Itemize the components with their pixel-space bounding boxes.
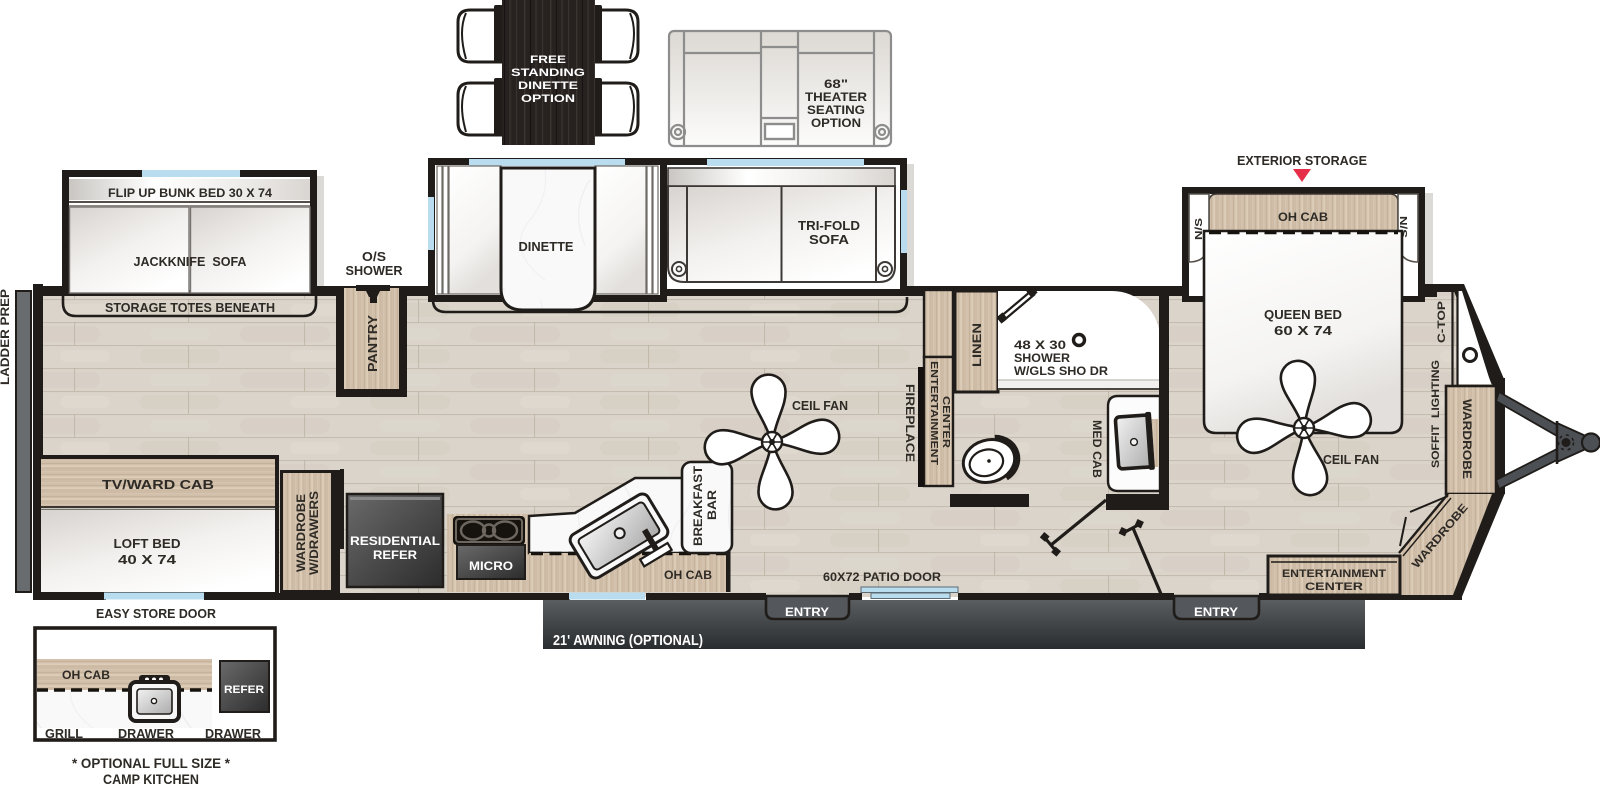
svg-text:21' AWNING (OPTIONAL): 21' AWNING (OPTIONAL)	[553, 633, 703, 649]
svg-text:48 X 30: 48 X 30	[1014, 338, 1066, 352]
svg-text:MED CAB: MED CAB	[1090, 420, 1102, 478]
svg-text:STORAGE TOTES BENEATH: STORAGE TOTES BENEATH	[105, 301, 275, 315]
svg-text:W/DRAWERS: W/DRAWERS	[309, 491, 321, 575]
svg-text:EASY STORE DOOR: EASY STORE DOOR	[96, 606, 217, 621]
svg-text:40 X 74: 40 X 74	[118, 553, 176, 567]
svg-text:CAMP KITCHEN: CAMP KITCHEN	[103, 772, 199, 785]
svg-text:60 X 74: 60 X 74	[1274, 324, 1332, 338]
svg-text:ENTERTAINMENT: ENTERTAINMENT	[1282, 568, 1386, 580]
svg-text:C-TOP: C-TOP	[1436, 301, 1448, 343]
svg-text:FLIP UP BUNK BED 30 X 74: FLIP UP BUNK BED 30 X 74	[108, 186, 272, 200]
svg-text:PANTRY: PANTRY	[366, 314, 380, 372]
svg-text:CEIL FAN: CEIL FAN	[1323, 453, 1379, 467]
svg-text:TV/WARD CAB: TV/WARD CAB	[102, 478, 214, 492]
svg-text:ENTRY: ENTRY	[1194, 605, 1238, 619]
svg-text:WARDROBE: WARDROBE	[1460, 399, 1472, 479]
svg-text:SEATING: SEATING	[807, 105, 865, 117]
svg-text:SHOWER: SHOWER	[346, 264, 403, 278]
svg-text:OPTION: OPTION	[521, 93, 575, 105]
svg-text:SOFFIT LIGHTING: SOFFIT LIGHTING	[1430, 360, 1442, 468]
svg-text:STANDING: STANDING	[511, 67, 585, 79]
svg-text:JACKKNIFE SOFA: JACKKNIFE SOFA	[134, 255, 247, 269]
svg-text:DRAWER: DRAWER	[205, 727, 261, 741]
svg-text:CEIL FAN: CEIL FAN	[792, 399, 848, 413]
svg-text:MICRO: MICRO	[469, 559, 513, 573]
svg-text:O/S: O/S	[362, 250, 386, 264]
svg-text:BREAKFAST: BREAKFAST	[693, 466, 705, 546]
svg-text:ENTERTAINMENT: ENTERTAINMENT	[928, 361, 939, 465]
svg-text:LINEN: LINEN	[972, 323, 984, 367]
svg-text:OPTION: OPTION	[811, 118, 861, 130]
svg-text:REFER: REFER	[224, 684, 264, 696]
svg-text:OH CAB: OH CAB	[62, 670, 110, 682]
svg-text:WARDROBE: WARDROBE	[296, 494, 308, 572]
svg-text:DRAWER: DRAWER	[118, 727, 174, 741]
svg-text:* OPTIONAL FULL SIZE *: * OPTIONAL FULL SIZE *	[72, 756, 231, 771]
svg-text:GRILL: GRILL	[45, 727, 83, 741]
svg-text:QUEEN BED: QUEEN BED	[1264, 308, 1342, 322]
svg-text:ENTRY: ENTRY	[785, 605, 829, 619]
svg-text:EXTERIOR STORAGE: EXTERIOR STORAGE	[1237, 154, 1367, 168]
svg-text:CENTER: CENTER	[1305, 581, 1363, 593]
svg-text:FIREPLACE: FIREPLACE	[903, 384, 915, 462]
svg-text:LADDER PREP: LADDER PREP	[0, 289, 12, 385]
svg-text:SOFA: SOFA	[809, 233, 849, 247]
svg-text:W/GLS SHO DR: W/GLS SHO DR	[1014, 364, 1108, 378]
svg-text:60X72 PATIO DOOR: 60X72 PATIO DOOR	[823, 570, 941, 584]
svg-text:68": 68"	[824, 79, 848, 91]
svg-text:TRI-FOLD: TRI-FOLD	[798, 219, 860, 233]
svg-text:OH CAB: OH CAB	[664, 568, 712, 582]
svg-text:THEATER: THEATER	[805, 92, 868, 104]
svg-text:OH CAB: OH CAB	[1278, 210, 1328, 224]
svg-text:FREE: FREE	[530, 54, 566, 66]
svg-text:REFER: REFER	[373, 548, 417, 562]
svg-text:DINETTE: DINETTE	[518, 80, 578, 92]
svg-text:CENTER: CENTER	[940, 396, 951, 449]
svg-text:BAR: BAR	[707, 489, 719, 520]
svg-text:SHOWER: SHOWER	[1014, 351, 1070, 365]
svg-text:LOFT BED: LOFT BED	[114, 537, 181, 551]
svg-text:RESIDENTIAL: RESIDENTIAL	[350, 534, 440, 548]
svg-text:DINETTE: DINETTE	[519, 240, 574, 254]
